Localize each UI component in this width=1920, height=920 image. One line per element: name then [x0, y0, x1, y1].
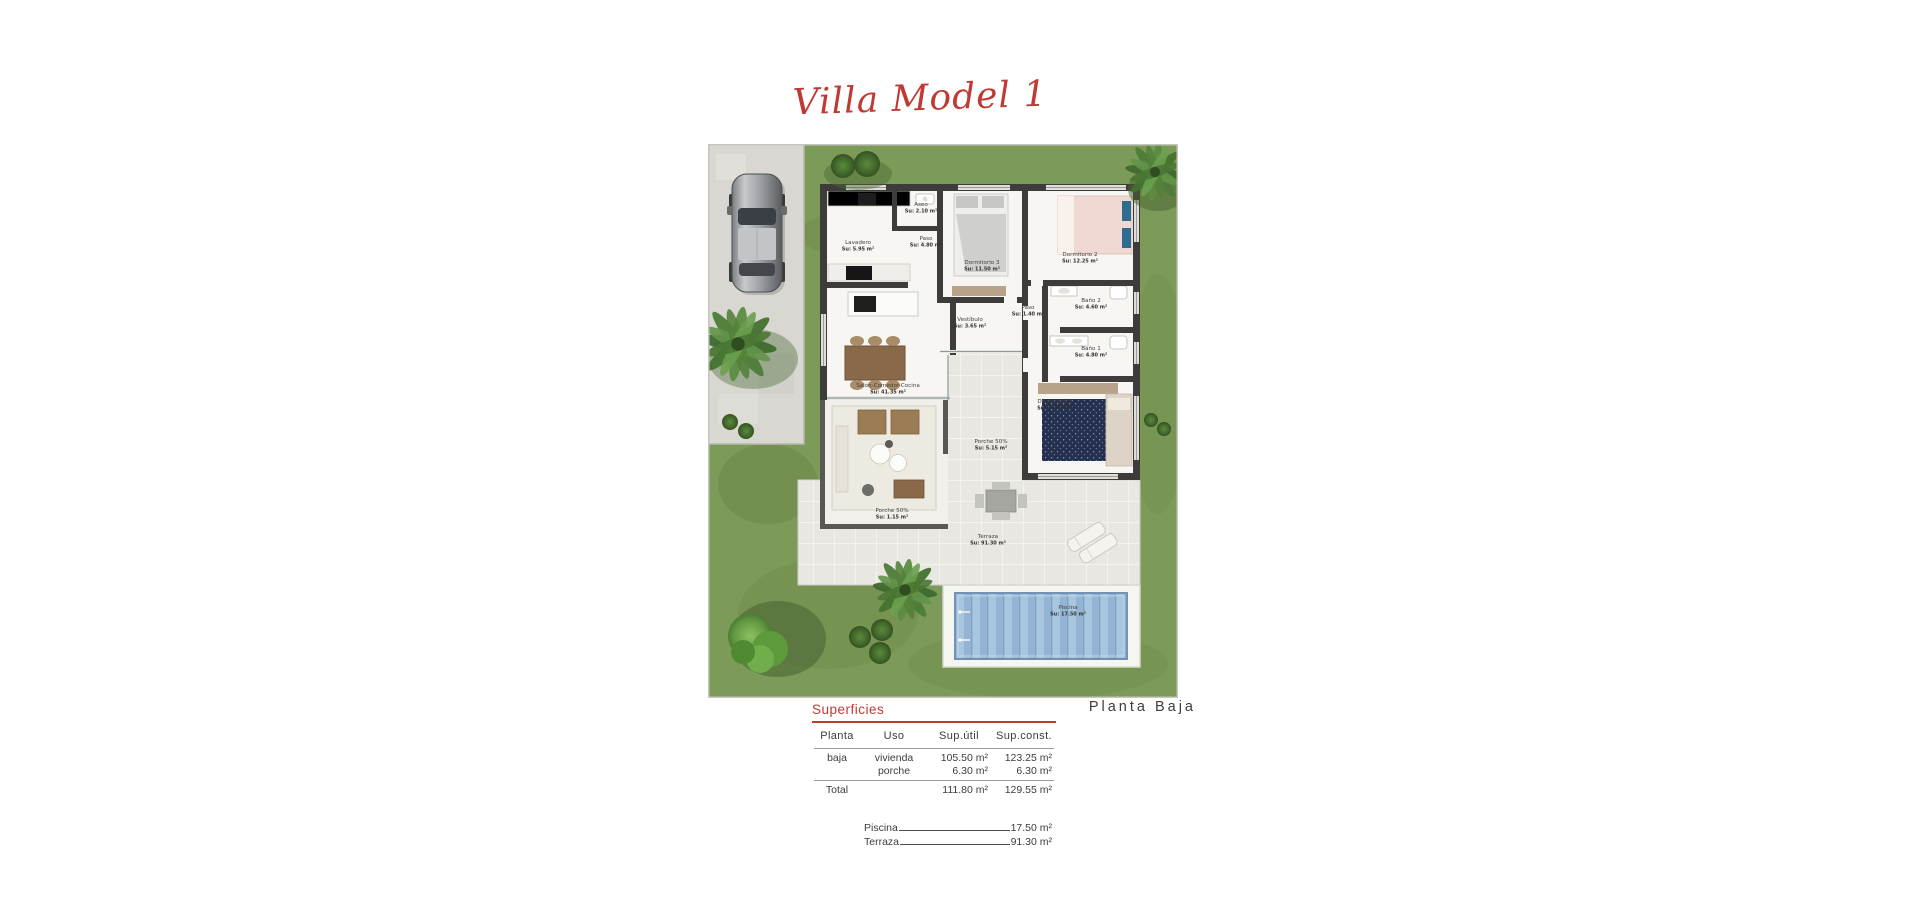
- bush-icon: [738, 423, 754, 439]
- cell-const: 6.30 m²: [992, 765, 1056, 778]
- extra-value: 17.50 m²: [1011, 821, 1052, 835]
- total-util: 111.80 m²: [926, 784, 992, 797]
- total-const: 129.55 m²: [992, 784, 1056, 797]
- divider: [814, 780, 1054, 781]
- surfaces-table: Superficies Planta Uso Sup.útil Sup.cons…: [812, 702, 1058, 849]
- cell-util: 6.30 m²: [926, 765, 992, 778]
- table-row: porche 6.30 m² 6.30 m²: [812, 765, 1058, 778]
- plan-title: Villa Model 1: [719, 71, 1120, 126]
- cell-const: 123.25 m²: [992, 752, 1056, 765]
- bush-icon: [1144, 413, 1158, 427]
- bush-icon: [869, 642, 891, 664]
- divider: [814, 748, 1054, 749]
- total-row: Total 111.80 m² 129.55 m²: [812, 784, 1058, 797]
- table-row: baja vivienda 105.50 m² 123.25 m²: [812, 752, 1058, 765]
- extra-label: Piscina: [864, 821, 898, 835]
- surfaces-header-row: Planta Uso Sup.útil Sup.const.: [812, 730, 1058, 746]
- col-uso: Uso: [862, 730, 926, 743]
- leader-line: [899, 821, 1010, 831]
- floor-label: Planta Baja: [1086, 699, 1196, 715]
- cell-util: 105.50 m²: [926, 752, 992, 765]
- room-label: Porche 50%Su: 5.15 m²: [974, 439, 1007, 452]
- extra-terraza: Terraza 91.30 m²: [864, 835, 1052, 849]
- cell-uso: porche: [862, 765, 926, 778]
- floor-plan-drawing: LavaderoSu: 5.95 m²AseoSu: 2.10 m²PasoSu…: [708, 144, 1178, 698]
- room-label: Dormitorio 2Su: 12.25 m²: [1062, 252, 1098, 265]
- extra-value: 91.30 m²: [1011, 835, 1052, 849]
- bush-icon: [722, 414, 738, 430]
- room-label: Porche 50%Su: 1.15 m²: [875, 508, 908, 521]
- bush-icon: [831, 154, 855, 178]
- room-label: VestíbuloSu: 3.65 m²: [954, 316, 986, 330]
- col-sup-util: Sup.útil: [926, 730, 992, 743]
- extra-piscina: Piscina 17.50 m²: [864, 821, 1052, 835]
- room-label: Dormitorio 3Su: 11.50 m²: [964, 260, 1000, 273]
- room-label: Dormitorio 1Su: 16.95 m²: [1037, 399, 1073, 412]
- bush-icon: [854, 151, 880, 177]
- col-planta: Planta: [812, 730, 862, 743]
- cell-planta: baja: [812, 752, 862, 765]
- total-label: Total: [812, 784, 862, 797]
- car: [727, 174, 787, 295]
- bush-icon: [1157, 422, 1171, 436]
- cell-uso: vivienda: [862, 752, 926, 765]
- bush-icon: [871, 619, 893, 641]
- surfaces-heading: Superficies: [812, 702, 1056, 723]
- leader-line: [900, 835, 1010, 845]
- bush-icon: [849, 626, 871, 648]
- room-label: LavaderoSu: 5.95 m²: [842, 240, 874, 253]
- site-plan: LavaderoSu: 5.95 m²AseoSu: 2.10 m²PasoSu…: [708, 144, 1178, 698]
- extra-label: Terraza: [864, 835, 899, 849]
- brochure-page: Villa Model 1: [0, 0, 1920, 920]
- pool: [943, 585, 1140, 667]
- extras: Piscina 17.50 m² Terraza 91.30 m²: [864, 821, 1052, 849]
- col-sup-const: Sup.const.: [992, 730, 1056, 743]
